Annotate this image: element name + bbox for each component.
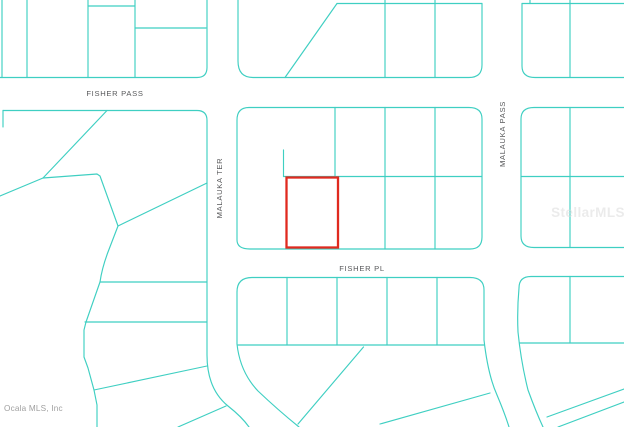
- map-line: [558, 402, 624, 427]
- map-line: [178, 406, 226, 427]
- stellar-mls-watermark: StellarMLS: [551, 205, 624, 220]
- street-label-malauka-pass: MALAUKA PASS: [498, 101, 507, 167]
- street-label-malauka-ter: MALAUKA TER: [215, 158, 224, 219]
- lower-center-block-outline: [237, 278, 509, 427]
- map-line: [285, 4, 337, 78]
- map-line: [298, 347, 364, 424]
- highlighted-parcel-outline: [287, 178, 339, 248]
- map-svg: FISHER PASS FISHER PL MALAUKA TER MALAUK…: [0, 0, 624, 427]
- top-right-block-outline: [522, 4, 624, 78]
- center-right-block-outline: [521, 108, 624, 248]
- attribution-text: Ocala MLS, Inc: [4, 404, 63, 413]
- map-line: [547, 389, 624, 417]
- map-line: [84, 226, 118, 427]
- parcel-lines: [0, 0, 624, 427]
- map-line: [237, 292, 299, 427]
- street-label-fisher-pass: FISHER PASS: [86, 89, 143, 98]
- map-line: [0, 111, 107, 197]
- street-label-fisher-pl: FISHER PL: [339, 264, 385, 273]
- plat-map: FISHER PASS FISHER PL MALAUKA TER MALAUK…: [0, 0, 624, 427]
- lower-left-block-outline: [3, 111, 249, 427]
- top-left-block-outline: [0, 0, 207, 78]
- map-line: [118, 183, 207, 226]
- map-line: [380, 393, 490, 424]
- center-left-block-outline: [237, 108, 482, 250]
- map-line: [518, 288, 543, 427]
- map-line: [94, 366, 207, 390]
- lower-right-block-outline: [519, 277, 624, 289]
- map-line: [43, 174, 118, 226]
- top-middle-block-outline: [238, 0, 482, 78]
